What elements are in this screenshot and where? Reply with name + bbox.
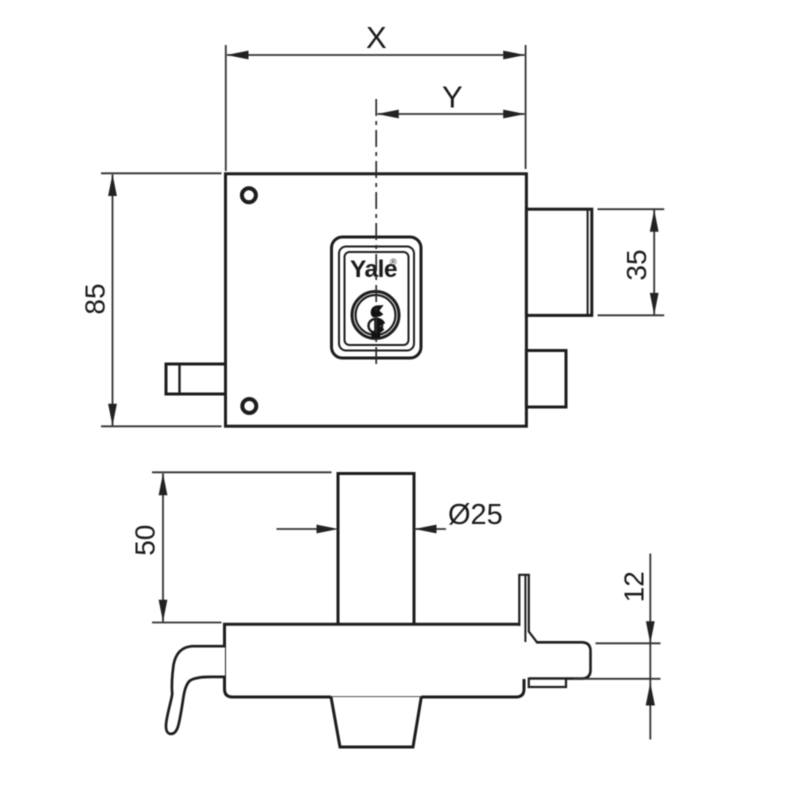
svg-text:®: ® — [390, 257, 397, 267]
svg-text:50: 50 — [130, 525, 161, 556]
svg-text:85: 85 — [79, 283, 110, 314]
svg-text:12: 12 — [619, 571, 650, 602]
svg-text:X: X — [366, 20, 387, 55]
svg-text:Ø25: Ø25 — [448, 499, 503, 531]
svg-text:35: 35 — [621, 249, 652, 280]
svg-text:Y: Y — [442, 80, 463, 115]
